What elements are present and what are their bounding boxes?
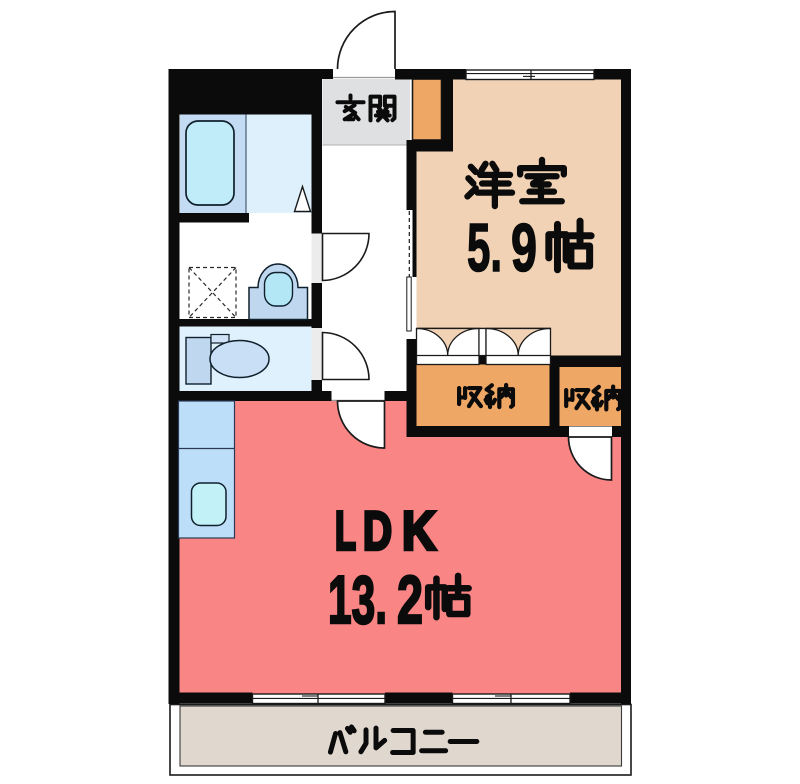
svg-text:L: L (335, 500, 356, 562)
svg-text:5.: 5. (467, 210, 502, 286)
svg-text:9: 9 (511, 210, 537, 286)
svg-text:D: D (363, 500, 392, 562)
svg-text:2: 2 (397, 562, 423, 638)
svg-text:K: K (402, 500, 436, 562)
svg-text:13.: 13. (328, 562, 387, 638)
